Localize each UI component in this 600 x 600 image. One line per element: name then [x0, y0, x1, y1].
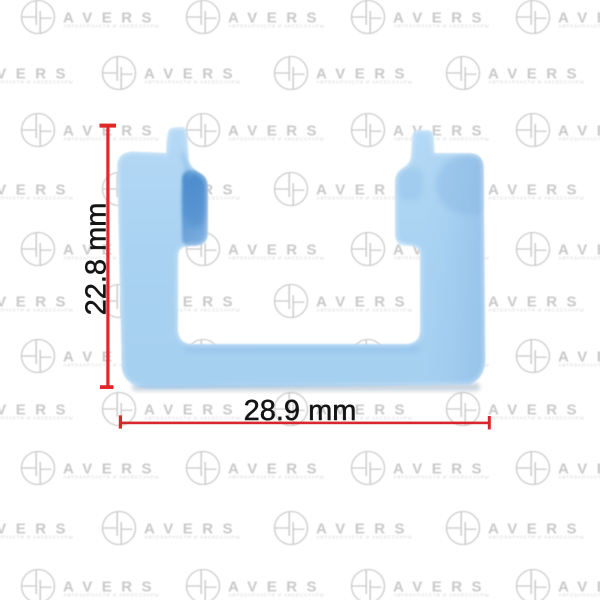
svg-text:22.8 mm: 22.8 mm — [81, 203, 113, 316]
svg-text:28.9 mm: 28.9 mm — [244, 395, 357, 427]
